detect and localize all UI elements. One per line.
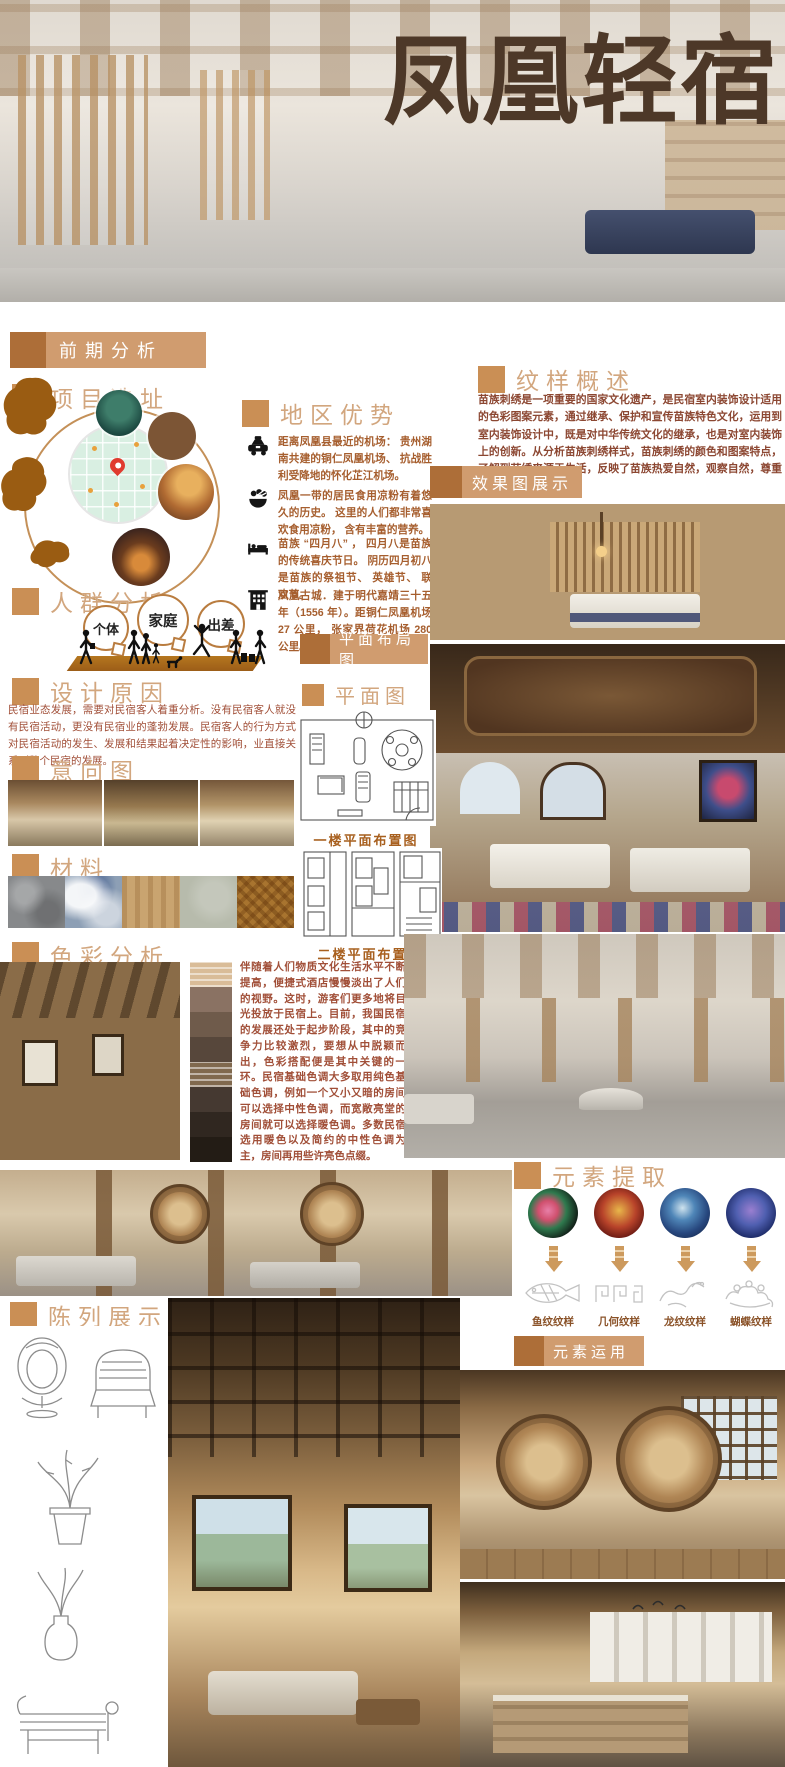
badge-square bbox=[430, 466, 462, 498]
fish-embroidery-photo bbox=[528, 1188, 578, 1238]
color-swatch-stack bbox=[190, 962, 232, 1162]
material-swatch-marble bbox=[65, 876, 122, 928]
header-pattern-overview: 纹样概述 bbox=[478, 362, 636, 396]
poster-title: 凤凰轻宿 bbox=[383, 30, 779, 137]
badge-square bbox=[300, 634, 330, 664]
poi-marker-icon bbox=[92, 446, 97, 451]
badge-label: 平面布局图 bbox=[330, 634, 428, 664]
bed bbox=[570, 594, 700, 628]
patterned-rug bbox=[430, 902, 785, 932]
reception-render-photo bbox=[460, 1582, 785, 1767]
taxi-icon bbox=[246, 434, 270, 458]
down-arrow-icon bbox=[743, 1246, 759, 1272]
framed-art bbox=[92, 1034, 124, 1076]
header-square-icon bbox=[242, 400, 269, 427]
ceiling-panel bbox=[464, 656, 757, 736]
bedroom-render-photo-2 bbox=[430, 644, 785, 932]
region-advantage-item: 凤凰一带的居民食用凉粉有着悠久的历史。 这里的人们都非常喜欢食用凉粉， 含有丰富… bbox=[246, 488, 432, 539]
coffered-ceiling bbox=[168, 1298, 460, 1457]
bed-icon bbox=[246, 536, 270, 560]
food-icon bbox=[246, 488, 270, 512]
window-view bbox=[192, 1495, 292, 1591]
badge-label: 元素运用 bbox=[544, 1336, 644, 1366]
section-badge-floor-layout: 平面布局图 bbox=[300, 634, 428, 664]
header-label: 平面图 bbox=[335, 680, 410, 709]
dragon-pattern-lineart-icon bbox=[654, 1274, 716, 1312]
badge-label: 前期分析 bbox=[46, 332, 206, 368]
badge-label: 效果图展示 bbox=[462, 466, 582, 498]
ceiling-beam-lines bbox=[0, 962, 180, 1018]
badge-square bbox=[10, 332, 46, 368]
section-badge-render-display: 效果图展示 bbox=[430, 466, 582, 498]
dragon-screen-render-photo bbox=[460, 1370, 785, 1579]
wood-slat-screen bbox=[200, 70, 270, 220]
color-swatch bbox=[190, 1112, 232, 1137]
header-square-icon bbox=[12, 756, 39, 783]
down-arrow-icon bbox=[611, 1246, 627, 1272]
poi-marker-icon bbox=[140, 484, 145, 489]
lobby-panorama-photo bbox=[404, 934, 785, 1158]
color-swatch bbox=[190, 1037, 232, 1062]
header-label: 地区优势 bbox=[280, 396, 400, 430]
fish-pattern-lineart-icon bbox=[522, 1274, 584, 1312]
color-swatch bbox=[190, 1087, 232, 1112]
stone-sculpture bbox=[579, 1088, 643, 1110]
geometric-embroidery-photo bbox=[594, 1188, 644, 1238]
stone-counter bbox=[493, 1701, 688, 1753]
sofa bbox=[404, 1094, 474, 1124]
header-square-icon bbox=[10, 1302, 37, 1329]
color-swatch bbox=[190, 1012, 232, 1037]
poi-marker-icon bbox=[114, 502, 119, 507]
section-badge-element-application: 元素运用 bbox=[514, 1336, 644, 1366]
color-analysis-paragraph: 伴随着人们物质文化生活水平不断提高，便捷式酒店慢慢淡出了人们的视野。这时，游客们… bbox=[240, 960, 406, 1165]
china-map-icon bbox=[26, 538, 72, 570]
pattern-label-dragon: 龙纹纹样 bbox=[653, 1314, 717, 1329]
dragon-embroidery-photo bbox=[660, 1188, 710, 1238]
rattan-armchair-sketch bbox=[84, 1340, 162, 1430]
window-view bbox=[344, 1504, 432, 1592]
butterfly-embroidery-photo bbox=[726, 1188, 776, 1238]
daybed-cushions bbox=[585, 210, 755, 254]
sunset-bridge-photo bbox=[158, 464, 214, 520]
bench-sketch bbox=[6, 1678, 136, 1764]
down-arrow-icon bbox=[677, 1246, 693, 1272]
concept-interior-photo bbox=[8, 780, 102, 846]
material-swatch-row bbox=[8, 876, 294, 928]
header-label: 元素提取 bbox=[552, 1158, 672, 1192]
roller-blinds bbox=[590, 1612, 772, 1682]
floor-plan-2 bbox=[302, 848, 442, 940]
ceiling-beams bbox=[404, 934, 785, 998]
bedroom-render-photo-1 bbox=[430, 504, 785, 640]
poi-marker-icon bbox=[88, 488, 93, 493]
badge-square bbox=[514, 1336, 544, 1366]
design-poster-board: 凤凰轻宿 前期分析 项目选址 地区优势 距离凤凰县最近的机场： 贵 bbox=[0, 0, 785, 1767]
province-silhouette-icon bbox=[2, 376, 62, 442]
flying-birds-icon bbox=[629, 1597, 699, 1617]
location-pin-icon bbox=[107, 455, 128, 476]
concept-interior-photo bbox=[200, 780, 294, 846]
butterfly-pattern-lineart-icon bbox=[720, 1274, 782, 1312]
poi-marker-icon bbox=[134, 442, 139, 447]
bed bbox=[490, 844, 610, 888]
bed-runner bbox=[570, 613, 700, 622]
region-advantage-text: 距离凤凰县最近的机场： 贵州湖南共建的铜仁凤凰机场、 抗战胜利受降地的怀化芷江机… bbox=[278, 434, 432, 485]
floor-plan-1-caption: 一楼平面布置图 bbox=[286, 830, 446, 849]
header-floor-plan: 平面图 bbox=[302, 680, 410, 709]
sofa bbox=[208, 1671, 358, 1715]
header-element-extraction: 元素提取 bbox=[514, 1158, 672, 1192]
coffee-table bbox=[356, 1699, 420, 1725]
province-silhouette-icon bbox=[0, 456, 50, 516]
color-swatch bbox=[190, 987, 232, 1012]
header-square-icon bbox=[478, 366, 505, 393]
lobby-daybed-photo bbox=[0, 1170, 512, 1296]
columns bbox=[404, 998, 785, 1082]
framed-art bbox=[22, 1040, 58, 1086]
daybed bbox=[250, 1262, 360, 1288]
potted-plant-sketch bbox=[26, 1442, 114, 1564]
window bbox=[540, 762, 606, 820]
pendant-light bbox=[600, 512, 603, 546]
guestroom-view-photo bbox=[168, 1298, 460, 1767]
branch-vase-sketch bbox=[14, 1564, 108, 1670]
wood-corridor-photo bbox=[0, 962, 180, 1160]
material-swatch-wood bbox=[122, 876, 179, 928]
header-square-icon bbox=[12, 588, 39, 615]
window bbox=[460, 762, 520, 814]
material-swatch-stone bbox=[8, 876, 65, 928]
region-advantage-text: 凤凰一带的居民食用凉粉有着悠久的历史。 这里的人们都非常喜欢食用凉粉， 含有丰富… bbox=[278, 488, 432, 539]
section-badge-preliminary-analysis: 前期分析 bbox=[10, 332, 206, 368]
pendant-light-bulb bbox=[596, 546, 607, 557]
header-label: 纹样概述 bbox=[516, 362, 636, 396]
wood-slat-screen bbox=[18, 55, 148, 245]
geometric-pattern-lineart-icon bbox=[588, 1274, 650, 1312]
material-swatch-herringbone bbox=[237, 876, 294, 928]
dragon-medallion-icon bbox=[496, 1414, 592, 1510]
old-street-photo bbox=[148, 412, 196, 460]
concept-photo-strip bbox=[8, 780, 294, 846]
pattern-label-fish: 鱼纹纹样 bbox=[521, 1314, 585, 1329]
header-square-icon bbox=[514, 1162, 541, 1189]
concept-interior-photo bbox=[104, 780, 198, 846]
carved-medallion-icon bbox=[150, 1184, 210, 1244]
bed bbox=[630, 848, 750, 892]
wood-floor bbox=[460, 1549, 785, 1579]
tapestry-art bbox=[699, 760, 757, 822]
carved-medallion-icon bbox=[300, 1182, 364, 1246]
floor bbox=[0, 268, 785, 302]
night-town-photo bbox=[112, 528, 170, 586]
furniture-sketch-column bbox=[0, 1326, 166, 1767]
dragon-medallion-icon bbox=[616, 1406, 722, 1512]
daybed bbox=[16, 1256, 136, 1286]
color-swatch bbox=[190, 962, 232, 987]
people-silhouettes bbox=[50, 596, 280, 680]
slat-headboard-wall bbox=[550, 522, 700, 592]
pattern-label-geometric: 几何纹样 bbox=[587, 1314, 651, 1329]
region-advantage-item: 距离凤凰县最近的机场： 贵州湖南共建的铜仁凤凰机场、 抗战胜利受降地的怀化芷江机… bbox=[246, 434, 432, 485]
pattern-label-butterfly: 蝴蝶纹样 bbox=[719, 1314, 783, 1329]
color-swatch bbox=[190, 1137, 232, 1162]
color-swatch bbox=[190, 1062, 232, 1087]
down-arrow-icon bbox=[545, 1246, 561, 1272]
floor-plan-1 bbox=[298, 710, 436, 826]
hanging-chair-sketch bbox=[6, 1332, 78, 1426]
header-regional-advantages: 地区优势 bbox=[242, 396, 400, 430]
material-swatch-sage bbox=[180, 876, 237, 928]
river-town-photo bbox=[96, 390, 142, 436]
header-square-icon bbox=[12, 678, 39, 705]
header-square-icon bbox=[302, 684, 324, 706]
